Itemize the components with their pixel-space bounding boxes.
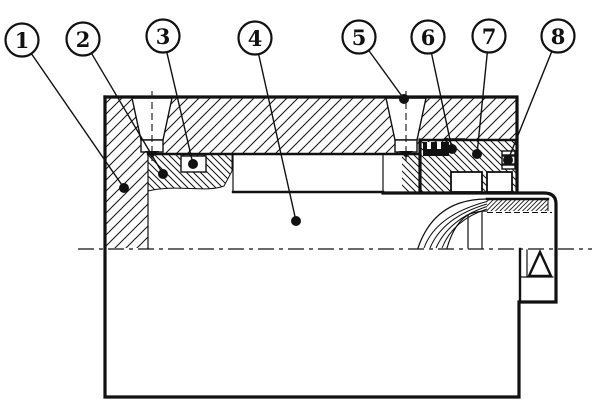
- felt-seal-part6: [423, 142, 449, 156]
- threaded-shaft-end: [487, 199, 552, 213]
- callout-number-7: 7: [482, 24, 497, 49]
- callout-number-4: 4: [248, 26, 263, 51]
- bearing-pockets: [451, 172, 512, 192]
- leader-dot-3: [188, 159, 198, 169]
- callout-number-3: 3: [156, 24, 171, 49]
- callout-number-2: 2: [76, 27, 91, 52]
- leader-dot-6: [447, 144, 457, 154]
- leader-dot-8: [503, 155, 513, 165]
- technical-drawing-page: 12345678: [0, 0, 600, 418]
- leader-dot-1: [119, 183, 129, 193]
- section-drawing: 12345678: [0, 0, 600, 418]
- inner-sleeve-part4: [233, 155, 383, 192]
- leader-dot-5: [399, 94, 409, 104]
- spacer-hatch: [402, 153, 420, 192]
- leader-dot-7: [472, 149, 482, 159]
- callout-number-5: 5: [352, 25, 367, 50]
- callout-number-6: 6: [421, 25, 436, 50]
- leader-dot-2: [158, 169, 168, 179]
- leader-dot-4: [291, 216, 301, 226]
- callout-number-1: 1: [15, 28, 30, 53]
- callout-number-8: 8: [551, 24, 566, 49]
